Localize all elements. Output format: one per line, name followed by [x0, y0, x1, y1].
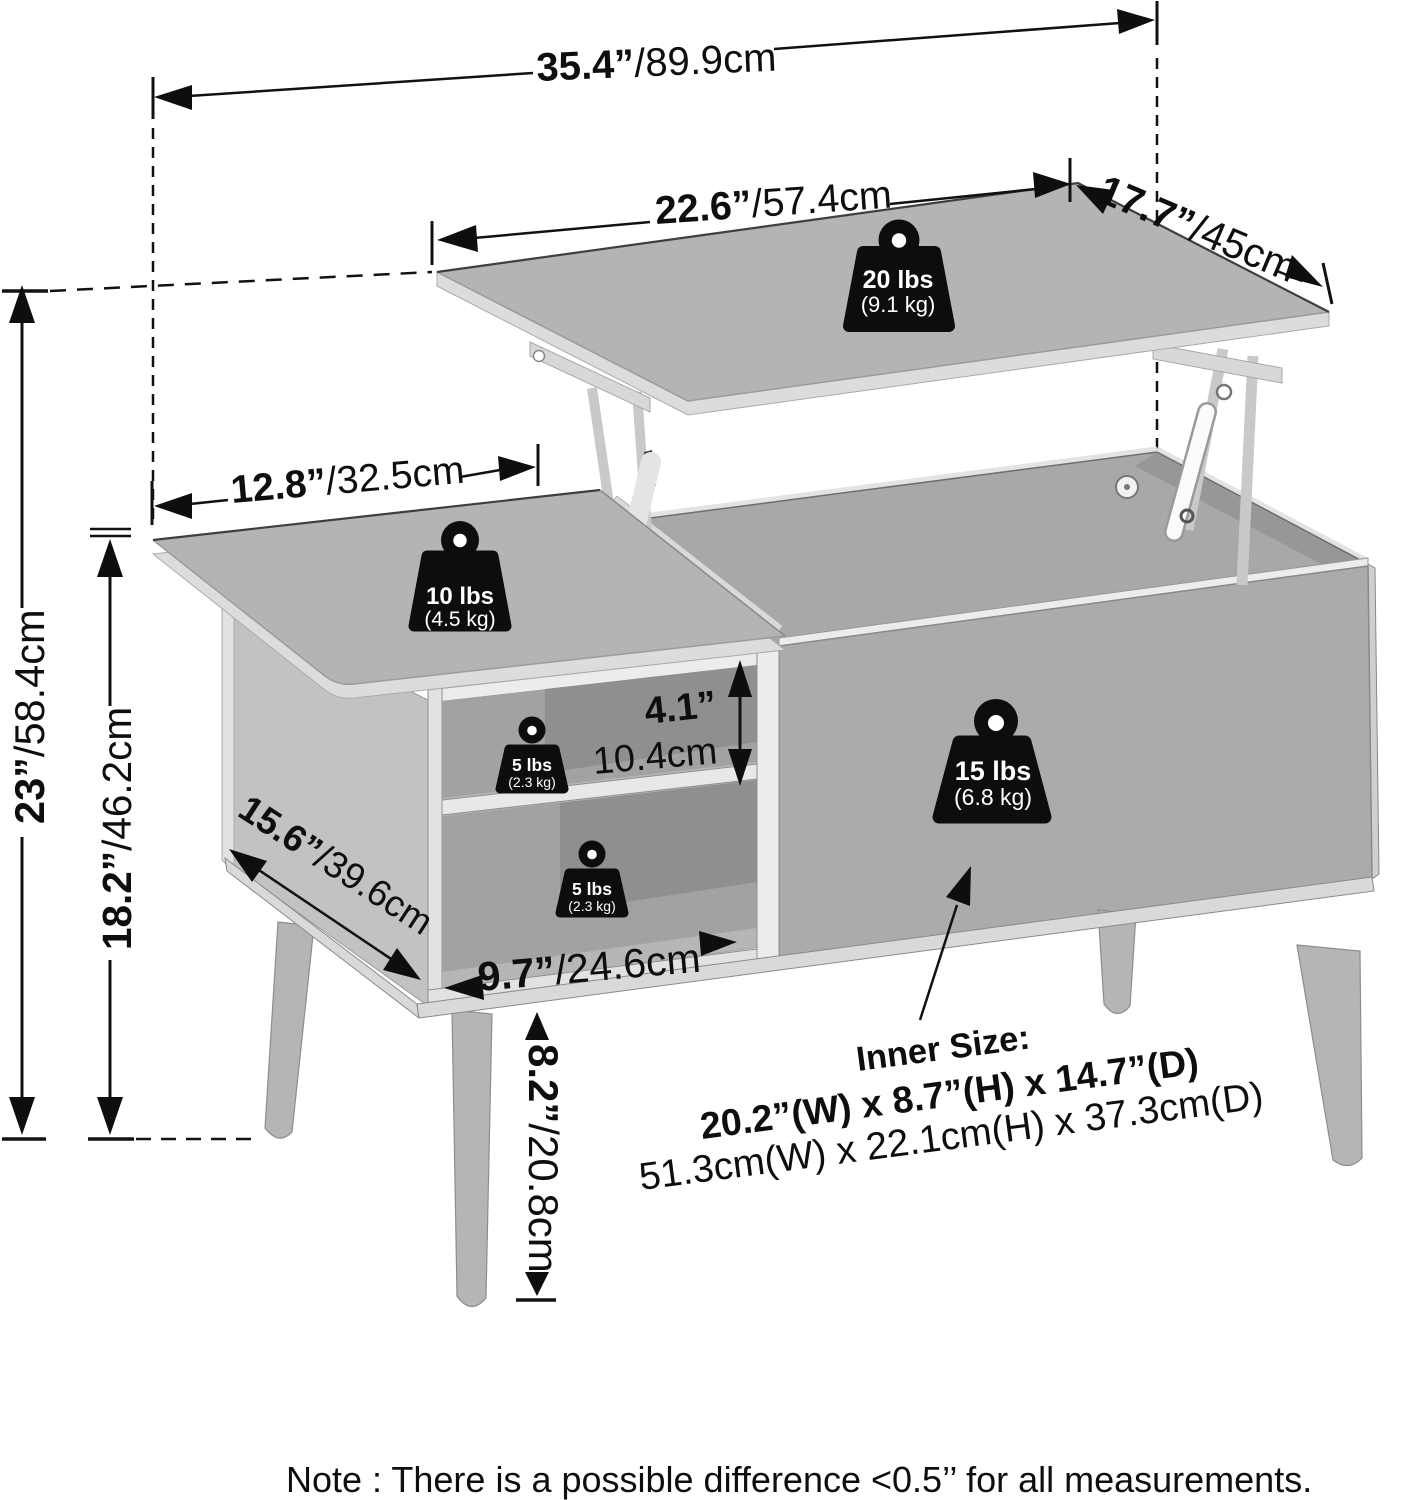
svg-text:23”/58.4cm: 23”/58.4cm — [6, 609, 53, 824]
svg-text:5 lbs: 5 lbs — [512, 755, 552, 775]
svg-text:(9.1 kg): (9.1 kg) — [861, 292, 936, 317]
svg-text:(4.5 kg): (4.5 kg) — [424, 608, 495, 631]
svg-text:10 lbs: 10 lbs — [426, 583, 494, 610]
svg-text:5 lbs: 5 lbs — [572, 879, 612, 899]
svg-text:(6.8 kg): (6.8 kg) — [954, 784, 1032, 810]
svg-text:4.1”: 4.1” — [643, 684, 719, 733]
svg-text:(2.3 kg): (2.3 kg) — [508, 774, 555, 790]
svg-text:Note : There is a possible dif: Note : There is a possible difference <0… — [286, 1459, 1312, 1500]
svg-text:15 lbs: 15 lbs — [955, 756, 1032, 786]
svg-text:20 lbs: 20 lbs — [863, 266, 934, 294]
svg-text:18.2”/46.2cm: 18.2”/46.2cm — [94, 707, 140, 950]
svg-text:(2.3 kg): (2.3 kg) — [568, 898, 615, 914]
svg-text:8.2”/20.8cm: 8.2”/20.8cm — [520, 1044, 567, 1273]
